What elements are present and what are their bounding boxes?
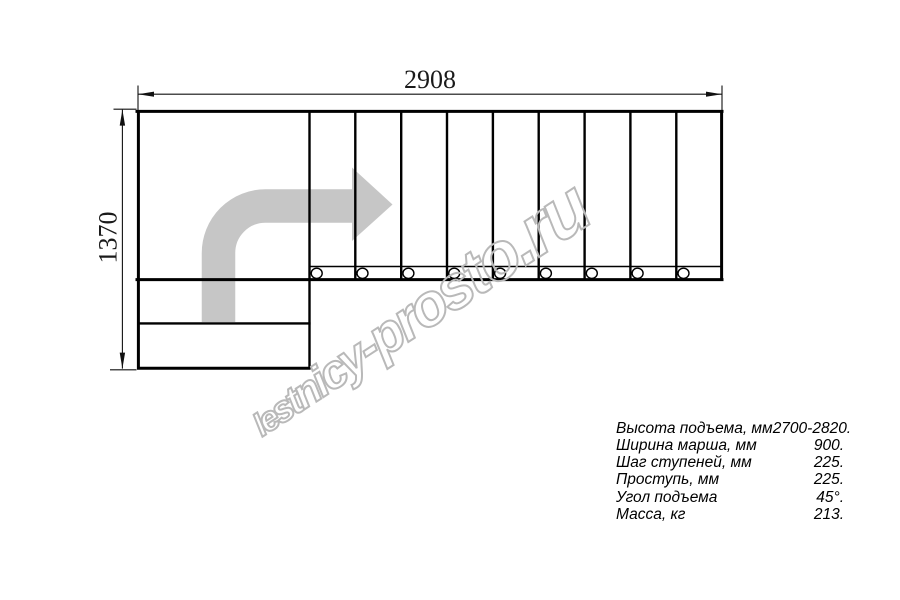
fastener-hole (586, 268, 597, 278)
direction-arrow-shaft (219, 206, 353, 322)
fastener-hole (311, 268, 322, 278)
dimension-width-value: 2908 (404, 65, 456, 94)
spec-label: Шаг ступеней, мм (616, 454, 752, 471)
spec-value: 900. (814, 437, 844, 454)
fastener-hole (678, 268, 689, 278)
spec-label: Высота подъема, мм (616, 420, 773, 437)
direction-arrow (219, 168, 393, 323)
stair-drawing-canvas: 2908 1370 lestnicy-prosto.ru Высота подъ… (0, 0, 900, 600)
spec-table: Высота подъема, мм 2700-2820. Ширина мар… (616, 420, 844, 523)
spec-row: Ширина марша, мм 900. (616, 437, 844, 454)
dimension-top: 2908 (138, 65, 722, 110)
dimension-arrow-up-icon (120, 110, 125, 126)
spec-row: Высота подъема, мм 2700-2820. (616, 420, 844, 437)
dimension-height-value: 1370 (94, 212, 123, 264)
spec-label: Масса, кг (616, 506, 685, 523)
spec-value: 213. (814, 506, 844, 523)
spec-value: 2700-2820. (773, 420, 851, 437)
dimension-arrow-down-icon (120, 353, 125, 369)
spec-label: Проступь, мм (616, 471, 719, 488)
spec-row: Проступь, мм 225. (616, 471, 844, 488)
fastener-hole (632, 268, 643, 278)
spec-row: Угол подъема 45°. (616, 489, 844, 506)
dimension-arrow-right-icon (706, 92, 722, 97)
spec-value: 225. (814, 471, 844, 488)
spec-row: Масса, кг 213. (616, 506, 844, 523)
spec-label: Угол подъема (616, 489, 717, 506)
dimension-left: 1370 (94, 109, 137, 370)
spec-label: Ширина марша, мм (616, 437, 757, 454)
dimension-arrow-left-icon (138, 92, 154, 97)
spec-value: 45°. (816, 489, 844, 506)
direction-arrow-head (352, 168, 393, 242)
spec-row: Шаг ступеней, мм 225. (616, 454, 844, 471)
fastener-hole (357, 268, 368, 278)
spec-value: 225. (814, 454, 844, 471)
